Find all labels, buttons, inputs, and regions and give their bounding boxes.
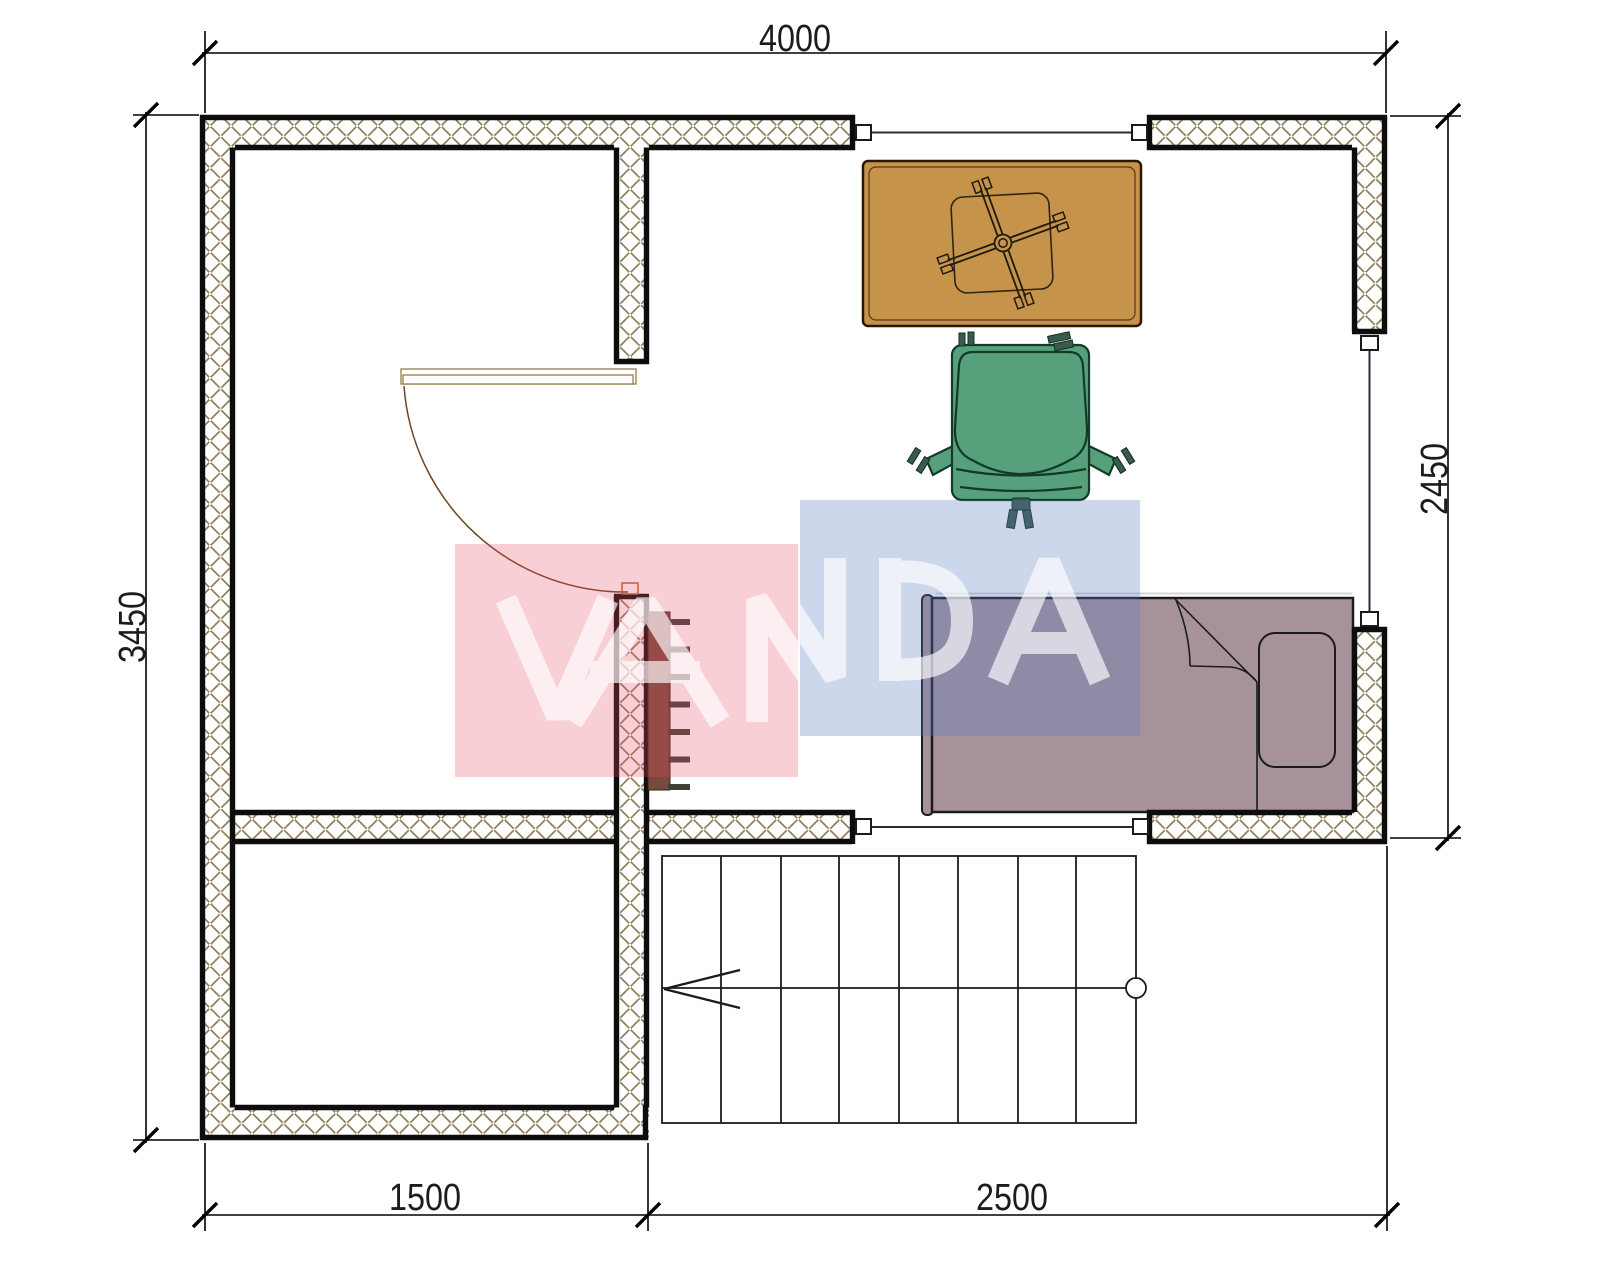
svg-text:1500: 1500 [389,1177,461,1219]
svg-text:2500: 2500 [976,1177,1048,1219]
svg-text:4000: 4000 [759,18,831,60]
svg-text:2450: 2450 [1414,443,1456,515]
svg-text:3450: 3450 [112,591,154,663]
